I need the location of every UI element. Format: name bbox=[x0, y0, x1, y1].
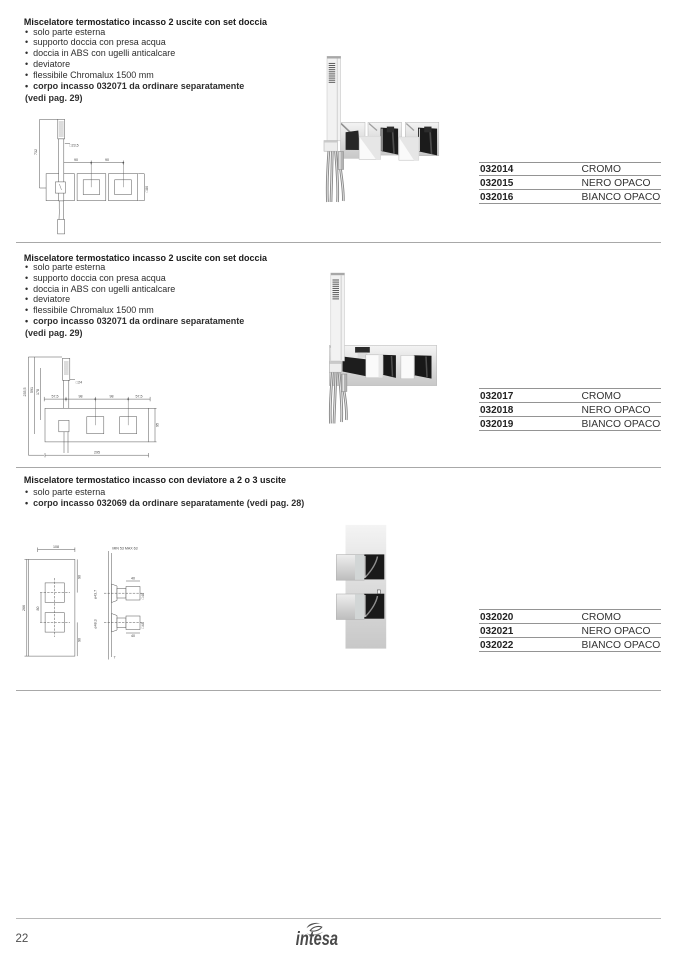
svg-text:57,5: 57,5 bbox=[136, 395, 143, 399]
svg-text:90: 90 bbox=[77, 638, 81, 642]
svg-text:90: 90 bbox=[105, 158, 109, 162]
svg-text:591: 591 bbox=[30, 387, 34, 393]
svg-text:40: 40 bbox=[131, 577, 135, 581]
svg-text:90: 90 bbox=[74, 158, 78, 162]
svg-text:90: 90 bbox=[77, 575, 81, 579]
svg-text:□48: □48 bbox=[141, 593, 145, 599]
svg-text:108: 108 bbox=[53, 545, 59, 549]
svg-text:7: 7 bbox=[114, 656, 116, 660]
svg-text:□48: □48 bbox=[141, 622, 145, 628]
svg-text:732: 732 bbox=[34, 149, 38, 155]
svg-text:266: 266 bbox=[22, 605, 26, 611]
svg-text:⌀48,3: ⌀48,3 bbox=[94, 619, 98, 628]
svg-text:□23,5: □23,5 bbox=[69, 144, 78, 148]
svg-text:178: 178 bbox=[36, 389, 40, 395]
svg-text:□80: □80 bbox=[145, 186, 149, 192]
svg-text:intesa: intesa bbox=[296, 928, 338, 949]
svg-text:80: 80 bbox=[36, 607, 40, 611]
svg-text:98: 98 bbox=[79, 395, 83, 399]
svg-text:98: 98 bbox=[110, 395, 114, 399]
svg-text:MIN 53 MAX 63: MIN 53 MAX 63 bbox=[112, 547, 137, 551]
svg-text:295: 295 bbox=[94, 451, 100, 455]
svg-text:⌀43,7: ⌀43,7 bbox=[94, 590, 98, 599]
svg-text:40: 40 bbox=[131, 634, 135, 638]
svg-text:235,5: 235,5 bbox=[23, 388, 27, 397]
svg-text:95: 95 bbox=[155, 423, 159, 427]
svg-text:57,5: 57,5 bbox=[52, 395, 59, 399]
svg-text:□24: □24 bbox=[76, 381, 82, 385]
